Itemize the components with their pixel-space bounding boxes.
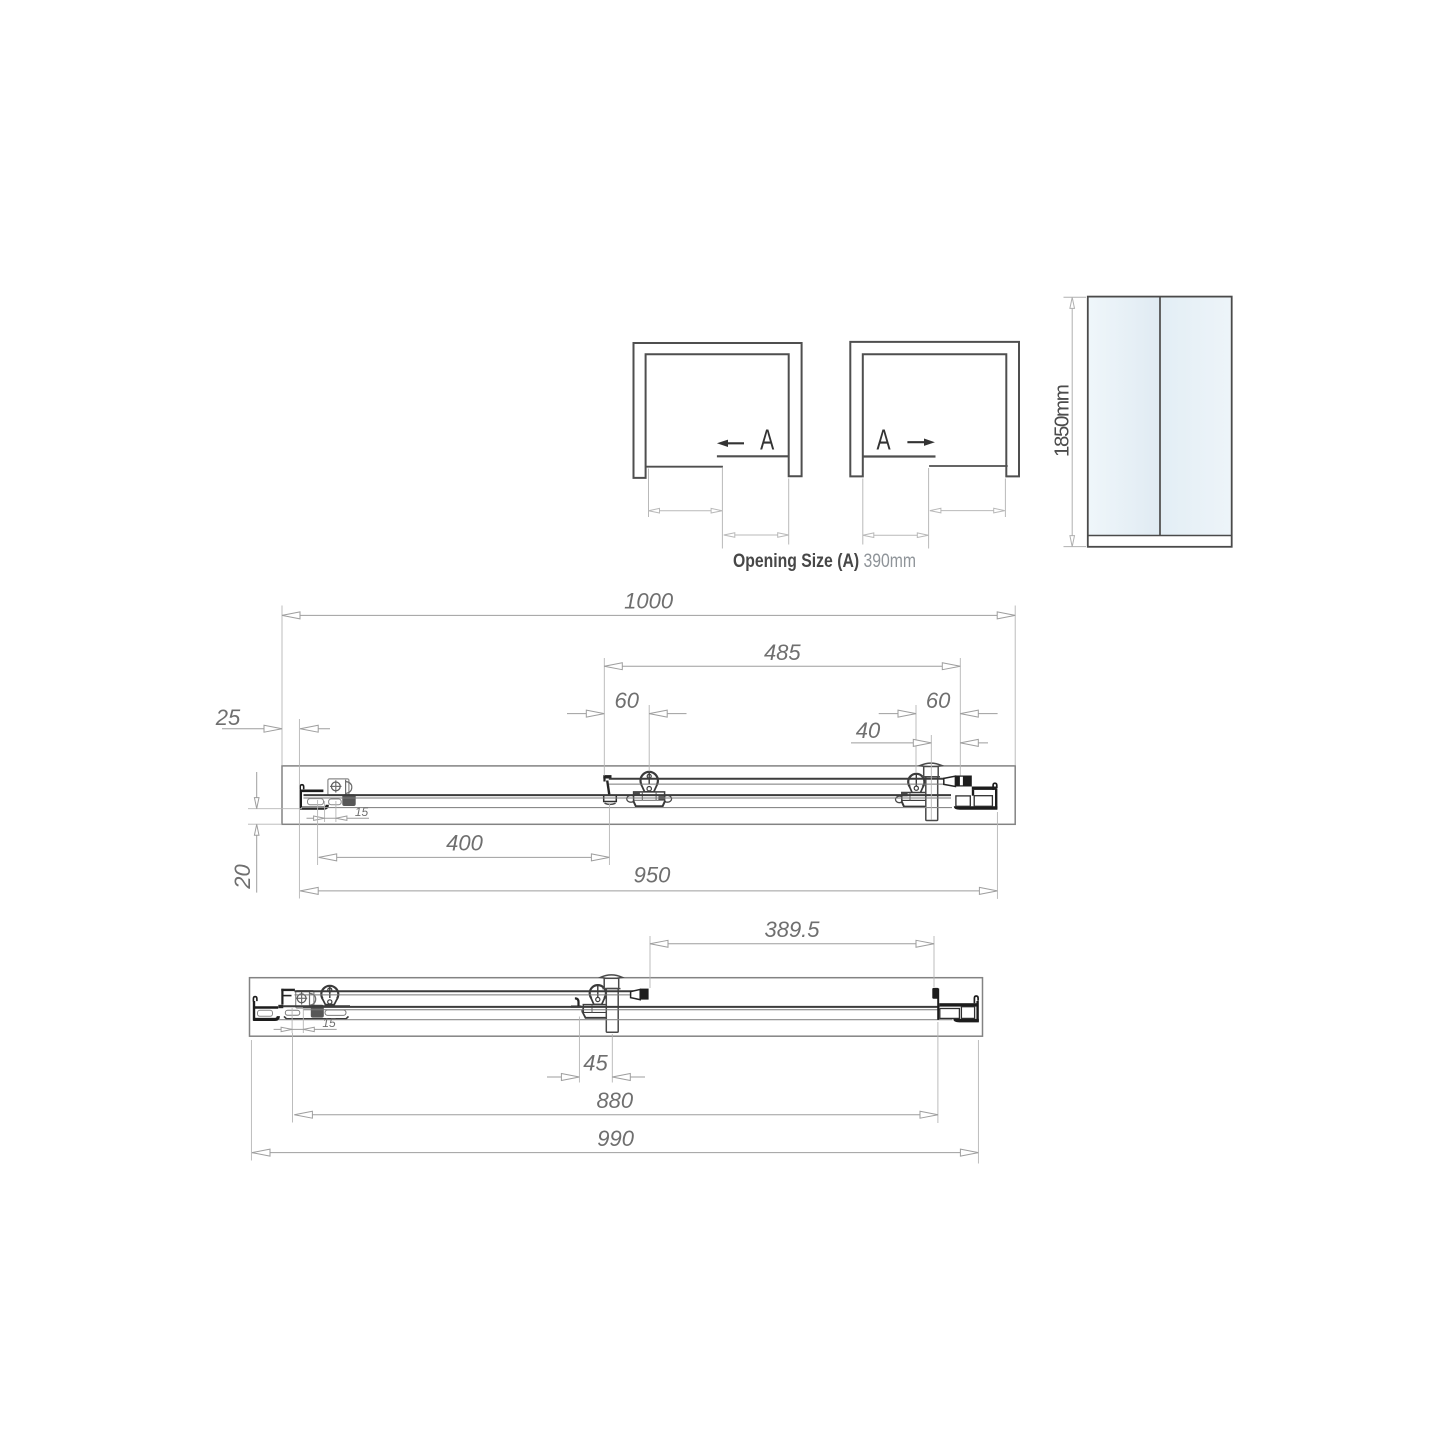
svg-text:950: 950 xyxy=(634,862,671,887)
svg-text:60: 60 xyxy=(926,688,951,713)
svg-text:990: 990 xyxy=(597,1126,634,1151)
svg-text:60: 60 xyxy=(614,688,639,713)
svg-text:A: A xyxy=(760,424,774,456)
svg-text:A: A xyxy=(876,424,890,456)
svg-text:389.5: 389.5 xyxy=(764,917,820,942)
svg-text:25: 25 xyxy=(215,705,241,730)
svg-text:15: 15 xyxy=(355,805,369,819)
svg-text:15: 15 xyxy=(322,1016,336,1030)
svg-text:45: 45 xyxy=(583,1050,608,1075)
svg-text:1000: 1000 xyxy=(624,589,674,614)
svg-text:1850mm: 1850mm xyxy=(1051,385,1074,457)
svg-text:20: 20 xyxy=(230,864,255,890)
svg-text:880: 880 xyxy=(596,1088,633,1113)
svg-text:485: 485 xyxy=(764,640,801,665)
svg-text:40: 40 xyxy=(856,718,881,743)
svg-text:400: 400 xyxy=(446,831,483,856)
svg-text:Opening Size (A) 390mm: Opening Size (A) 390mm xyxy=(733,550,916,572)
